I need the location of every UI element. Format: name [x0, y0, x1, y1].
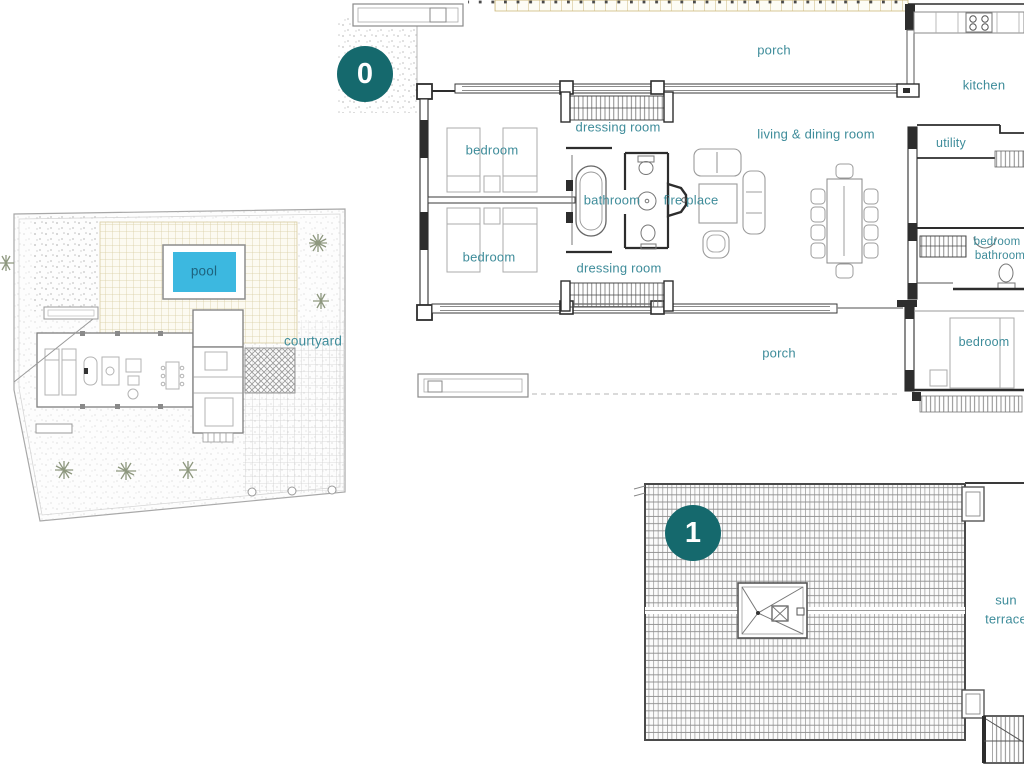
floor-plan-drawing: [0, 0, 1024, 768]
room-label-bedroom-top: bedroom: [466, 143, 519, 158]
roof-stairs: [984, 716, 1024, 763]
room-label-dressing-room-top: dressing room: [576, 120, 661, 135]
room-label-courtyard: courtyard: [284, 334, 342, 349]
room-label-sun-terrace-line1: sun: [995, 593, 1017, 608]
site-plan: [0, 209, 345, 521]
room-label-living-dining: living & dining room: [757, 127, 874, 142]
room-label-bathroom: bathroom: [584, 193, 641, 208]
room-label-porch-bottom: porch: [762, 346, 796, 361]
room-label-kitchen: kitchen: [963, 78, 1006, 93]
room-label-sun-terrace-line2: terrace: [985, 612, 1024, 627]
level-0-badge: 0: [337, 46, 393, 102]
room-label-porch-top: porch: [757, 43, 791, 58]
level-1-badge: 1: [665, 505, 721, 561]
room-label-bathroom-right: bathroom: [975, 250, 1024, 262]
dining-set: [811, 164, 878, 278]
pergola-posts: [468, 1, 898, 5]
room-label-fire-place: fire place: [664, 193, 719, 208]
room-label-bedroom-right: bedroom: [974, 236, 1021, 248]
room-label-bedroom-bottom-right: bedroom: [959, 335, 1010, 349]
right-wing: [897, 125, 1024, 412]
room-label-utility: utility: [936, 136, 966, 150]
room-label-pool: pool: [191, 264, 217, 279]
skylight: [738, 583, 807, 638]
floor-plan-image: 0 1 pool courtyard porch dressing room b…: [0, 0, 1024, 768]
room-label-dressing-room-bottom: dressing room: [577, 261, 662, 276]
room-label-bedroom-bottom: bedroom: [463, 250, 516, 265]
